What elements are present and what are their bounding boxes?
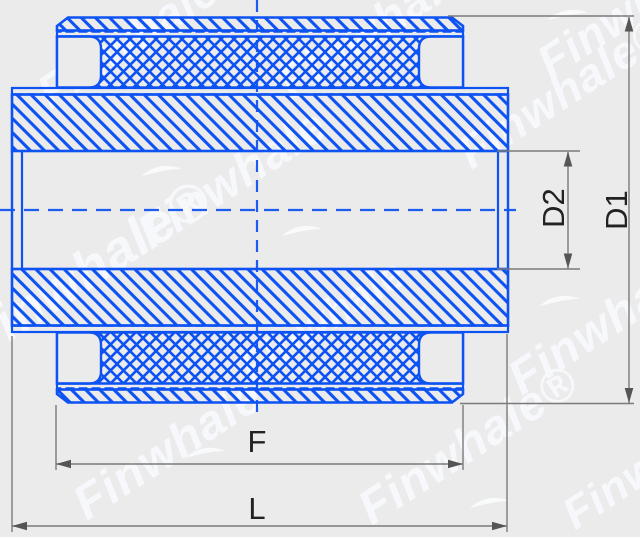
arrowhead-f-left bbox=[56, 460, 71, 469]
rubber-body-bottom bbox=[57, 333, 463, 384]
dim-label-d2: D2 bbox=[536, 188, 571, 228]
rubber-void-bottom-right bbox=[419, 333, 463, 384]
dim-label-l: L bbox=[248, 491, 265, 526]
fish-swoosh-logo bbox=[282, 226, 322, 236]
drawing-svg: Finwhale Finwhale® Finwhale Finwhale Fin… bbox=[0, 0, 640, 537]
inner-sleeve-upper-wall bbox=[12, 95, 508, 152]
rubber-void-top-right bbox=[419, 37, 463, 88]
fish-swoosh-logo bbox=[142, 166, 182, 176]
arrowhead-d2-up bbox=[564, 152, 573, 167]
dim-label-d1: D1 bbox=[599, 190, 634, 230]
fish-swoosh-logo bbox=[470, 498, 510, 508]
outer-sleeve-top-flange bbox=[57, 18, 463, 31]
rubber-void-bottom-left bbox=[57, 333, 101, 384]
rubber-void-top-left bbox=[57, 37, 101, 88]
arrowhead-l-left bbox=[12, 522, 27, 531]
arrowhead-d1-down bbox=[625, 388, 634, 403]
dim-label-f: F bbox=[248, 424, 267, 459]
inner-sleeve-lower-wall bbox=[12, 269, 508, 326]
inner-sleeve-knurl-strip-bottom bbox=[12, 326, 508, 333]
outer-sleeve-bottom-flange bbox=[57, 390, 463, 403]
bushing-technical-drawing: Finwhale Finwhale® Finwhale Finwhale Fin… bbox=[0, 0, 640, 537]
arrowhead-l-right bbox=[492, 522, 507, 531]
rubber-body-top bbox=[57, 37, 463, 88]
fish-swoosh-logo bbox=[540, 296, 580, 306]
watermark-text: Finwhale bbox=[554, 391, 640, 537]
arrowhead-d2-down bbox=[564, 254, 573, 269]
